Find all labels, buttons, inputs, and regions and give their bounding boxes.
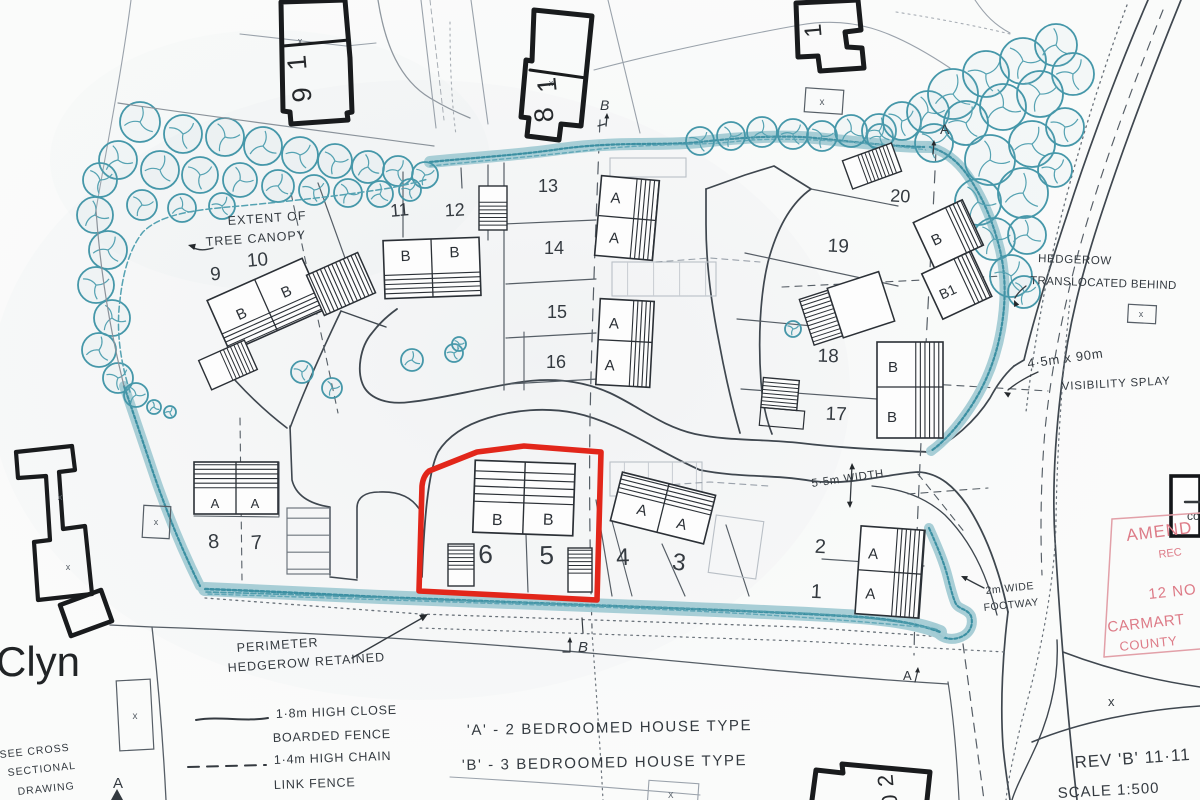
svg-text:B: B [600, 97, 609, 113]
svg-text:x: x [66, 562, 71, 572]
svg-text:12: 12 [444, 199, 465, 220]
svg-text:9: 9 [286, 86, 317, 104]
svg-text:1: 1 [810, 581, 822, 604]
svg-text:A: A [608, 230, 619, 248]
svg-text:8: 8 [207, 531, 220, 554]
svg-text:x: x [154, 517, 159, 527]
svg-text:x: x [133, 711, 138, 722]
svg-text:x: x [1139, 309, 1144, 319]
svg-text:B: B [400, 248, 411, 265]
svg-text:A: A [868, 545, 879, 563]
svg-text:10: 10 [246, 249, 269, 272]
svg-text:15: 15 [547, 302, 567, 322]
svg-text:8: 8 [528, 106, 559, 124]
svg-text:4: 4 [616, 544, 630, 571]
svg-text:11: 11 [389, 199, 409, 221]
svg-text:20: 20 [890, 185, 911, 206]
svg-text:Clyn: Clyn [0, 638, 80, 685]
svg-text:1: 1 [281, 54, 312, 72]
svg-text:14: 14 [544, 238, 564, 258]
svg-text:LINK FENCE: LINK FENCE [274, 775, 356, 792]
svg-text:2: 2 [814, 536, 826, 559]
svg-text:7: 7 [250, 532, 263, 555]
svg-text:2: 2 [873, 773, 899, 787]
svg-text:17: 17 [825, 404, 847, 426]
svg-text:A: A [604, 357, 615, 375]
svg-text:A: A [940, 121, 950, 137]
svg-text:A: A [251, 496, 260, 511]
svg-text:A: A [610, 190, 621, 208]
svg-text:B: B [492, 512, 503, 529]
svg-text:B: B [543, 512, 554, 529]
svg-text:A: A [903, 668, 912, 683]
svg-text:16: 16 [546, 352, 566, 372]
svg-text:A: A [211, 496, 220, 511]
svg-text:19: 19 [827, 235, 849, 257]
svg-text:x: x [1108, 694, 1115, 709]
svg-text:1: 1 [531, 76, 562, 94]
svg-text:1: 1 [799, 23, 827, 39]
svg-text:A: A [865, 585, 876, 603]
svg-text:B: B [578, 639, 588, 656]
svg-text:A: A [113, 775, 123, 792]
svg-text:A: A [609, 315, 620, 333]
svg-text:6: 6 [478, 539, 494, 570]
svg-text:9: 9 [209, 264, 221, 286]
svg-text:B: B [888, 359, 898, 376]
svg-text:x: x [58, 492, 63, 502]
svg-text:18: 18 [817, 346, 839, 368]
svg-text:x: x [668, 789, 674, 800]
svg-text:B: B [449, 244, 460, 261]
svg-text:B: B [887, 409, 897, 426]
svg-text:x: x [820, 97, 825, 108]
svg-text:5: 5 [539, 540, 555, 570]
svg-text:13: 13 [538, 176, 558, 196]
